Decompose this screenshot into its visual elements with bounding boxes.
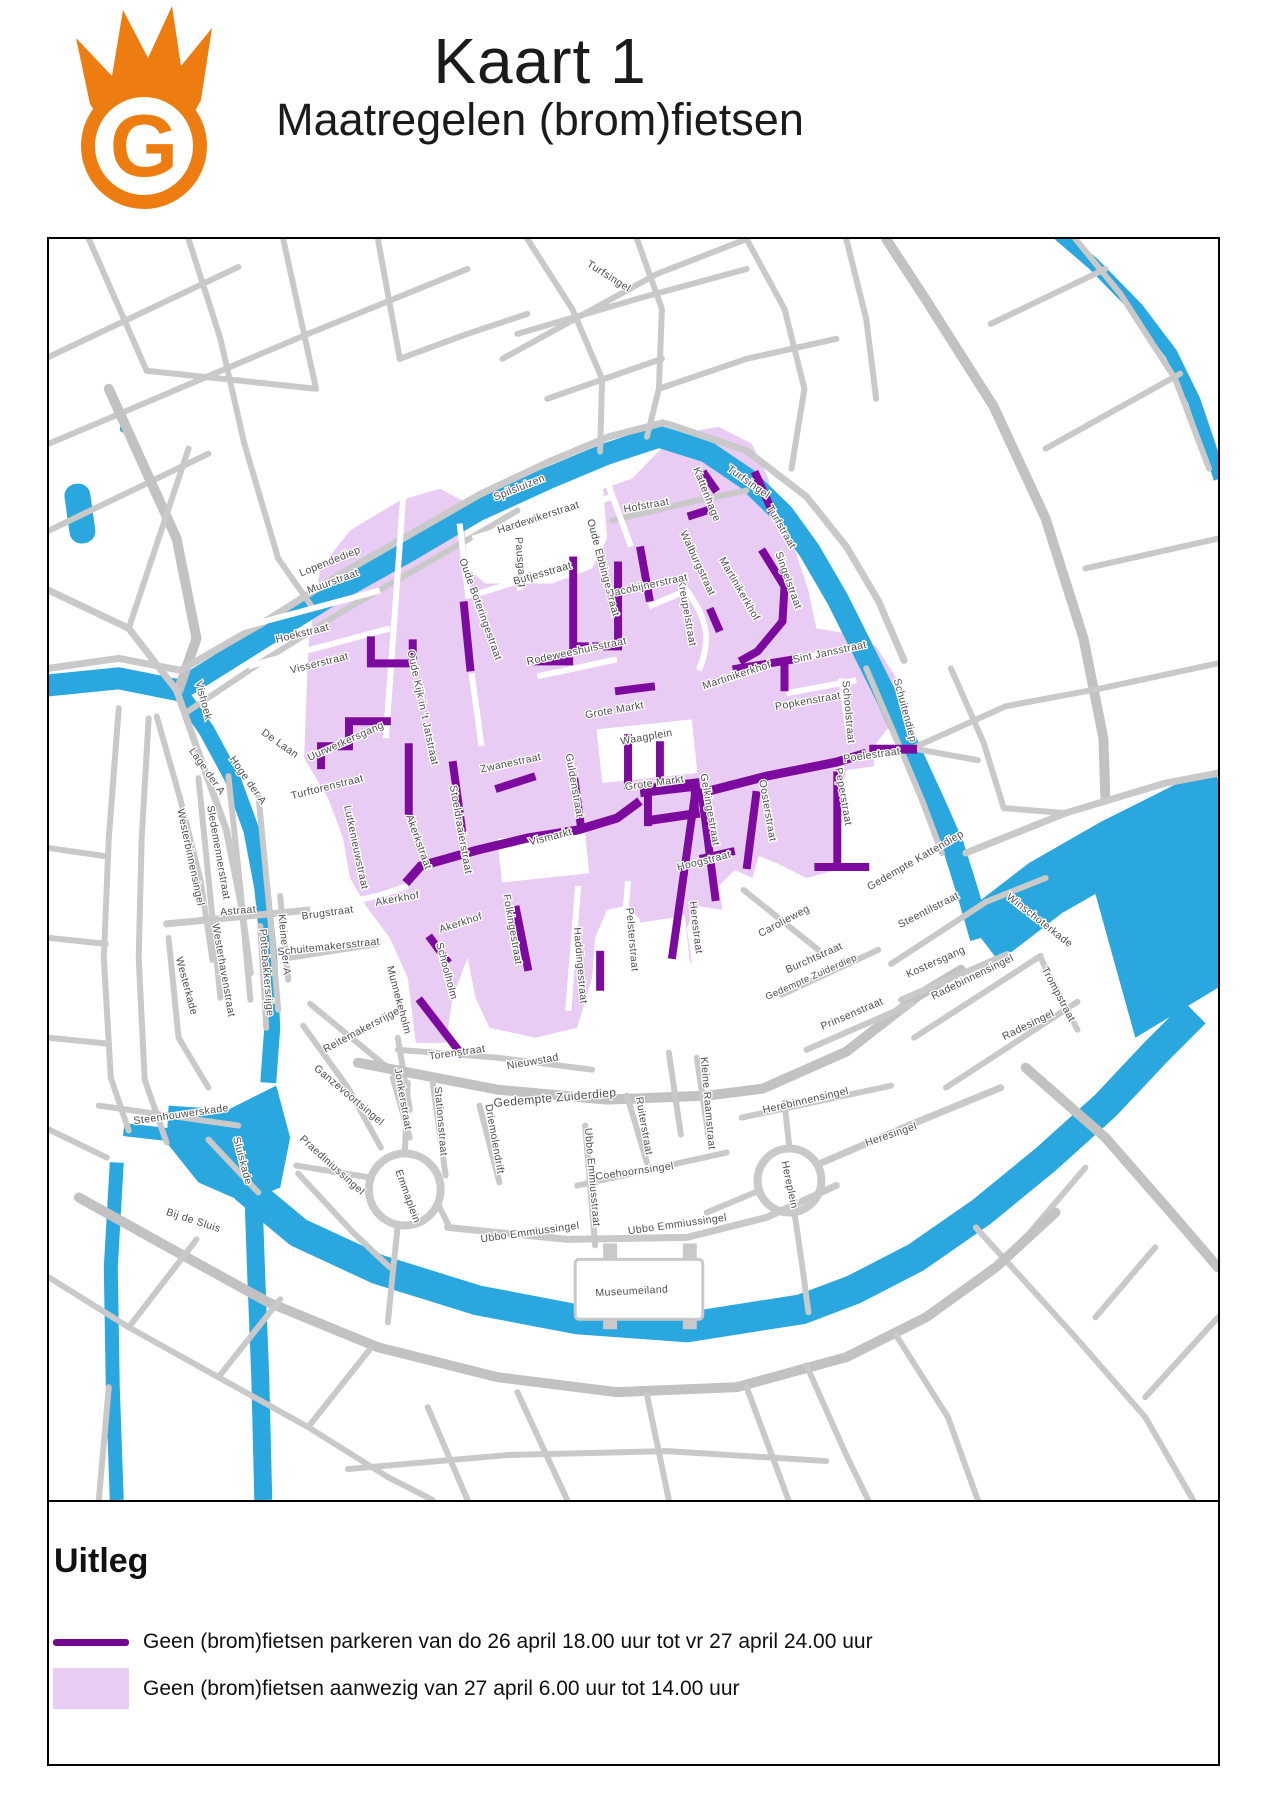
page: { "header": { "title": "Kaart 1", "subti… (0, 0, 1280, 1808)
page-title: Kaart 1 (160, 28, 920, 94)
legend: Uitleg Geen (brom)fietsen parkeren van d… (47, 1500, 1220, 1766)
legend-item-label: Geen (brom)fietsen parkeren van do 26 ap… (143, 1630, 873, 1654)
map-frame: SpilsluizenLopendediepTurfsingelTurfsing… (47, 237, 1220, 1502)
legend-swatch-area (53, 1668, 129, 1709)
canal-south-1 (253, 1192, 263, 1500)
map-title-block: Kaart 1 Maatregelen (brom)fietsen (160, 28, 920, 146)
legend-item-parking-ban: Geen (brom)fietsen parkeren van do 26 ap… (53, 1630, 873, 1654)
legend-item-presence-ban: Geen (brom)fietsen aanwezig van 27 april… (53, 1668, 740, 1709)
legend-item-label: Geen (brom)fietsen aanwezig van 27 april… (143, 1677, 740, 1701)
legend-swatch-line (53, 1639, 129, 1646)
map-canvas: SpilsluizenLopendediepTurfsingelTurfsing… (49, 239, 1218, 1500)
legend-heading: Uitleg (54, 1542, 148, 1581)
page-subtitle: Maatregelen (brom)fietsen (160, 94, 920, 146)
